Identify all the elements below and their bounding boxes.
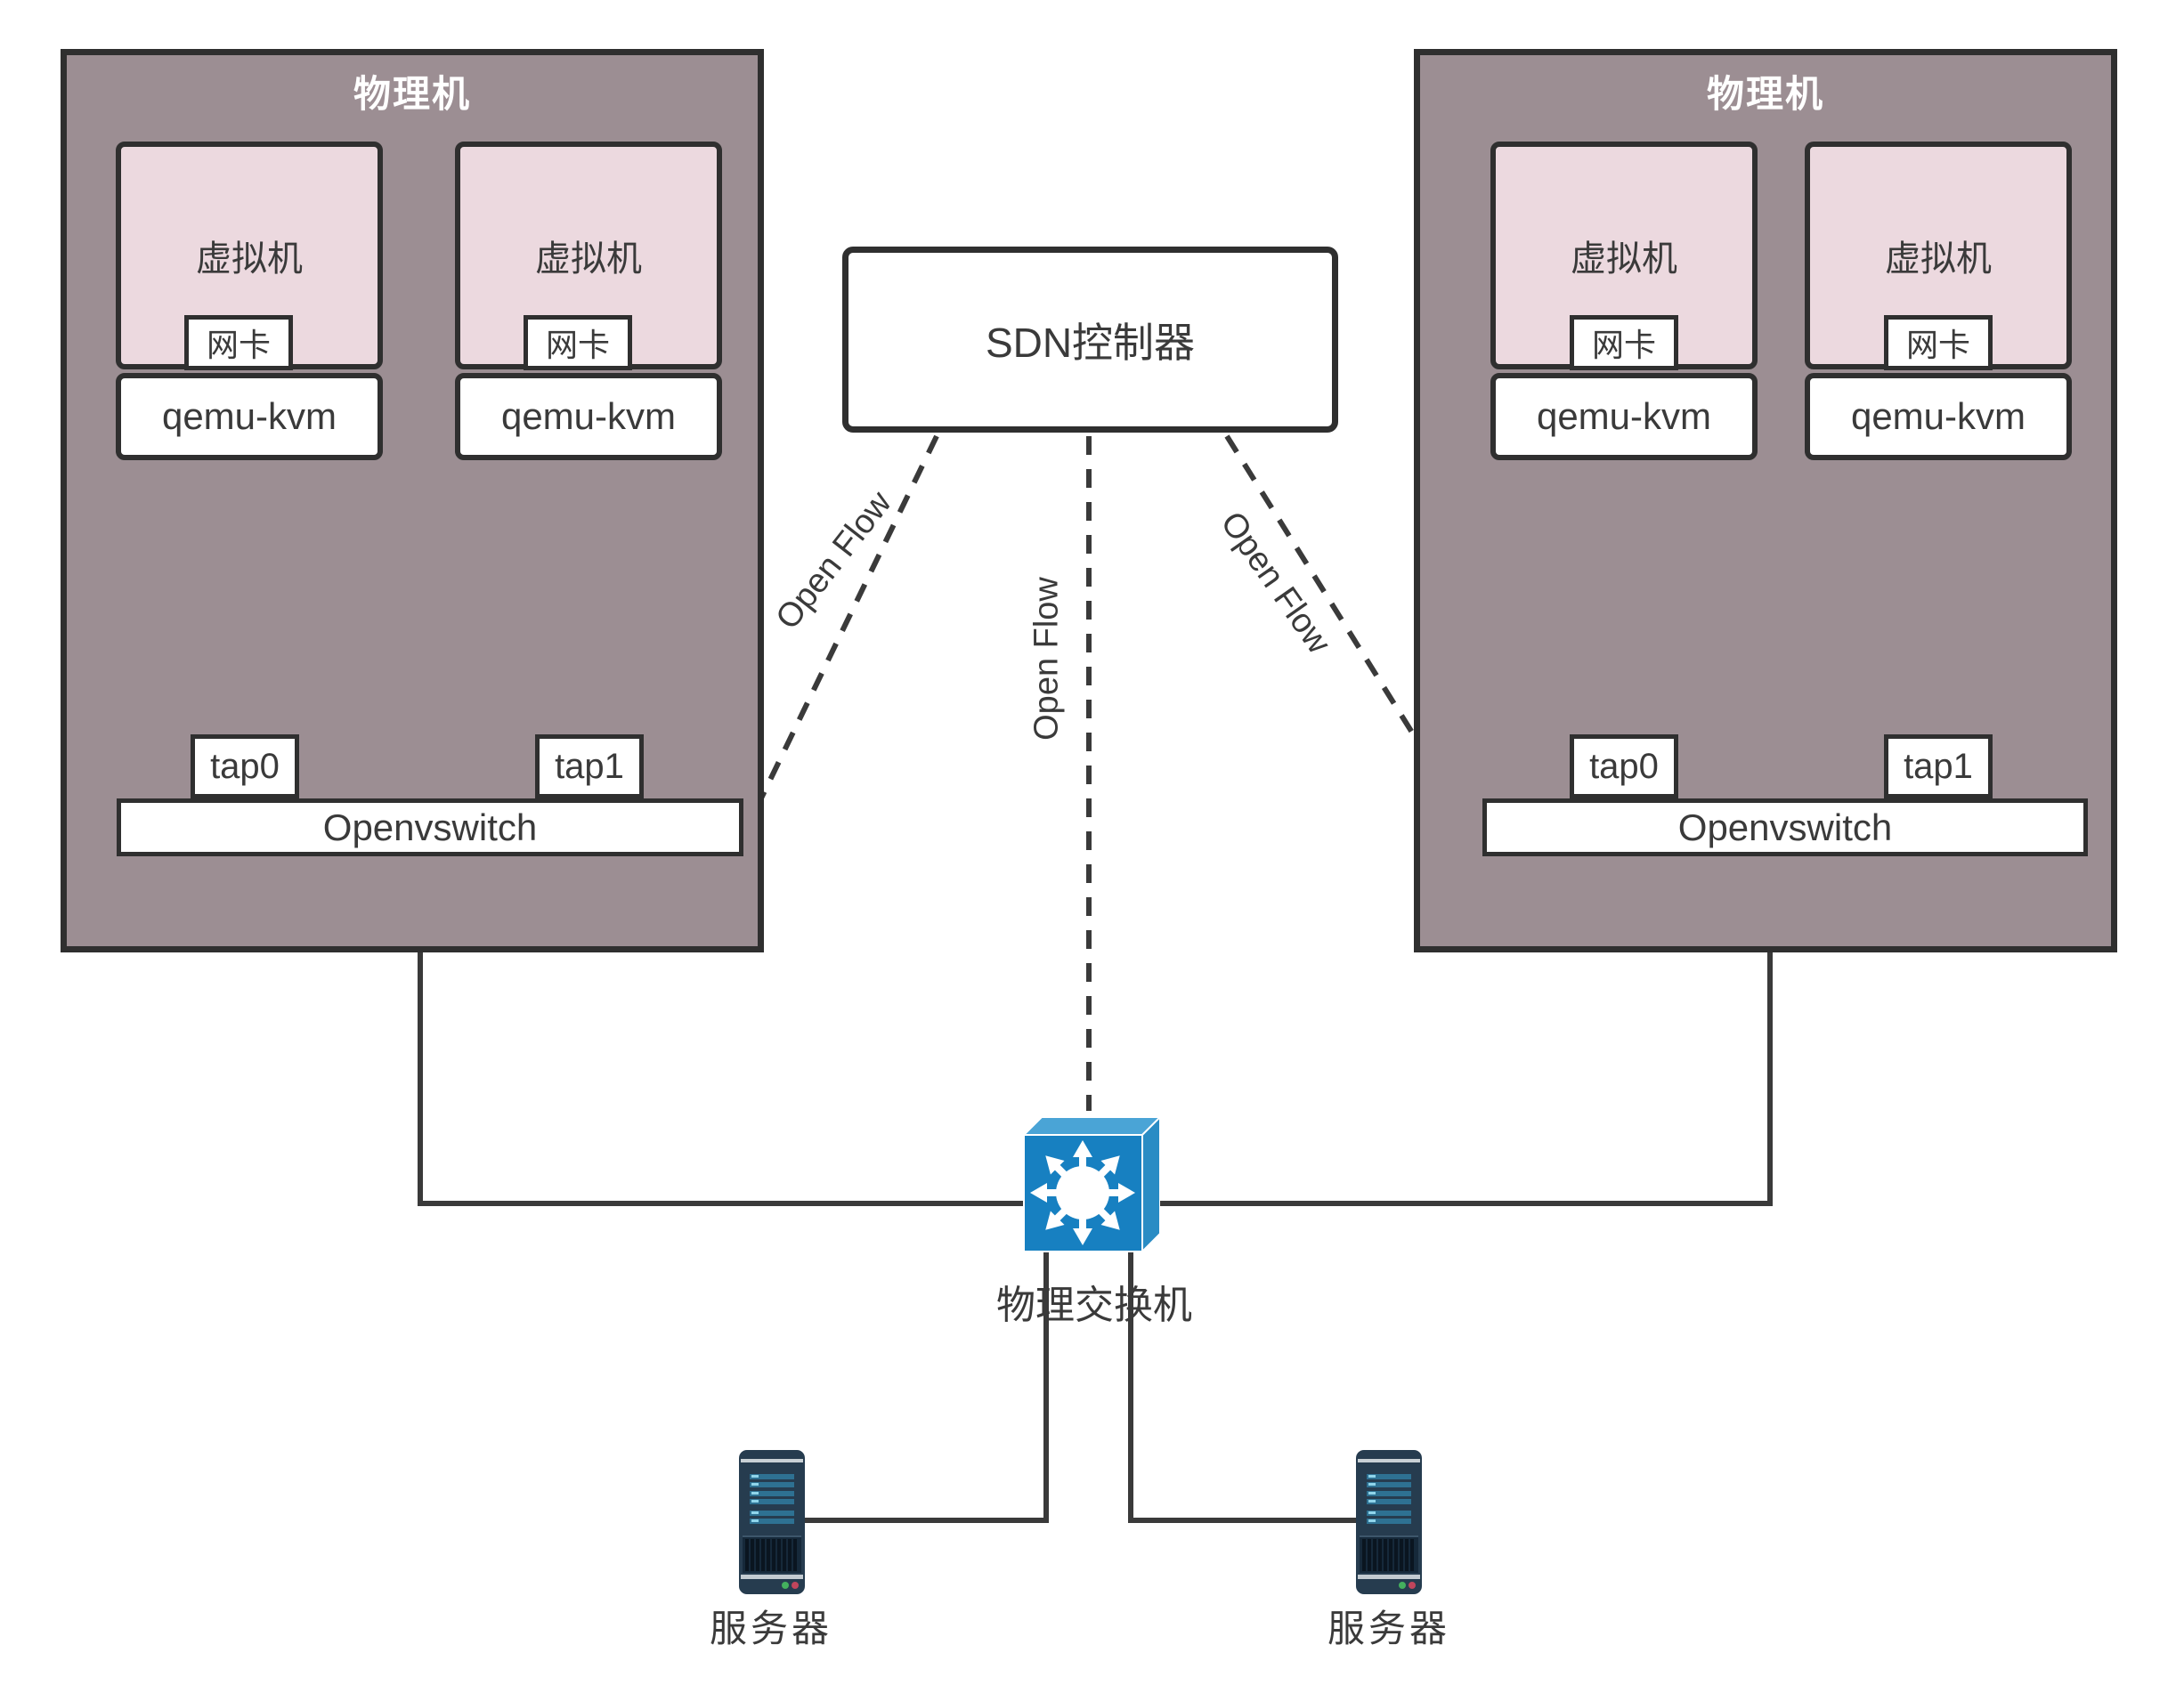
openflow-label-center: Open Flow: [1028, 577, 1067, 741]
vm-label: 虚拟机: [1571, 230, 1677, 281]
physical-host-left: 物理机 虚拟机 虚拟机 网卡 网卡 qemu-kvm qemu-kvm tap0…: [61, 49, 764, 952]
hypervisor-box: qemu-kvm: [116, 373, 383, 460]
tap-port-box: tap0: [191, 734, 299, 798]
server-tower-icon: [739, 1450, 805, 1594]
nic-box: 网卡: [524, 315, 632, 370]
hypervisor-box: qemu-kvm: [1490, 373, 1758, 460]
openvswitch-bar: Openvswitch: [117, 798, 743, 856]
server-label-left: 服务器: [682, 1599, 860, 1653]
physical-host-right: 物理机 虚拟机 虚拟机 网卡 网卡 qemu-kvm qemu-kvm tap0…: [1414, 49, 2117, 952]
tap-port-box: tap0: [1570, 734, 1678, 798]
vm-label: 虚拟机: [1885, 230, 1992, 281]
host-title: 物理机: [67, 64, 758, 118]
sdn-controller-box: SDN控制器: [842, 247, 1338, 433]
nic-box: 网卡: [1884, 315, 1993, 370]
openvswitch-bar: Openvswitch: [1482, 798, 2088, 856]
tap-port-box: tap1: [1884, 734, 1993, 798]
hypervisor-box: qemu-kvm: [455, 373, 722, 460]
physical-switch-label: 物理交换机: [983, 1273, 1206, 1330]
host-title: 物理机: [1420, 64, 2111, 118]
hypervisor-box: qemu-kvm: [1805, 373, 2072, 460]
server-label-right: 服务器: [1300, 1599, 1478, 1653]
openflow-link-left: [744, 436, 937, 833]
nic-box: 网卡: [1570, 315, 1678, 370]
vm-label: 虚拟机: [196, 230, 303, 281]
sdn-architecture-diagram: 物理机 虚拟机 虚拟机 网卡 网卡 qemu-kvm qemu-kvm tap0…: [0, 0, 2184, 1685]
nic-box: 网卡: [184, 315, 293, 370]
server-tower-icon: [1356, 1450, 1422, 1594]
vm-label: 虚拟机: [535, 230, 642, 281]
crossconnect-switch-icon: [1020, 1113, 1160, 1253]
tap-port-box: tap1: [535, 734, 644, 798]
